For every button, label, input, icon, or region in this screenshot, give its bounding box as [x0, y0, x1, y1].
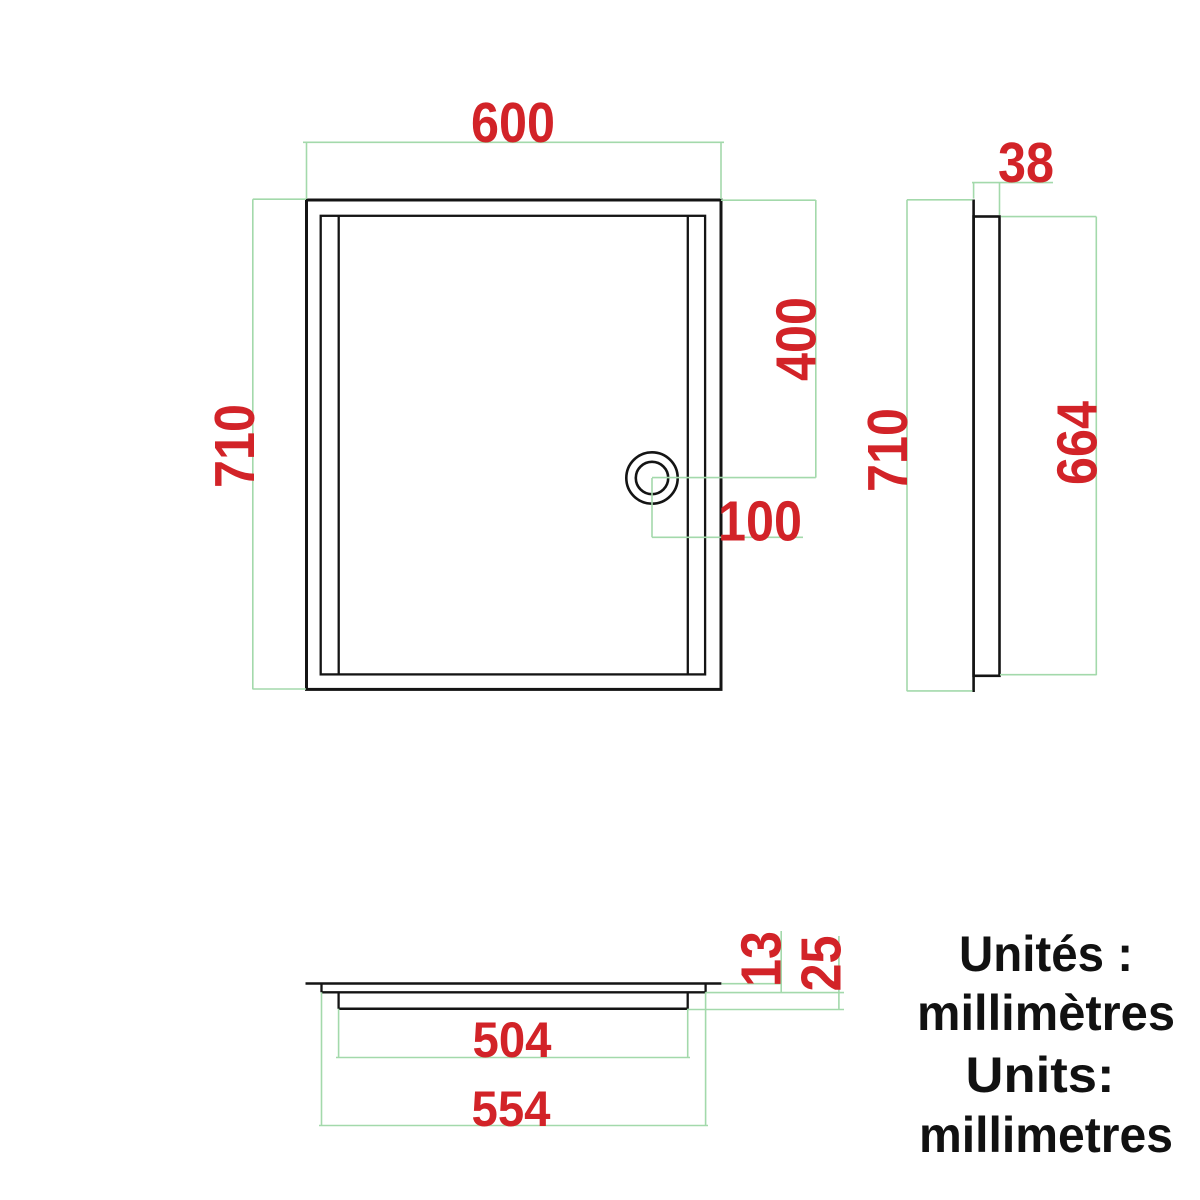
svg-text:Unités :: Unités :	[959, 926, 1133, 982]
svg-text:504: 504	[473, 1012, 552, 1068]
svg-text:400: 400	[765, 297, 829, 381]
svg-text:25: 25	[790, 936, 854, 992]
svg-text:millimetres: millimetres	[919, 1107, 1173, 1163]
svg-text:Units:: Units:	[966, 1047, 1115, 1103]
svg-text:554: 554	[472, 1081, 551, 1137]
svg-text:38: 38	[998, 131, 1054, 195]
svg-text:600: 600	[471, 91, 555, 155]
svg-text:710: 710	[856, 408, 920, 492]
svg-text:13: 13	[730, 931, 794, 987]
svg-text:664: 664	[1045, 401, 1109, 485]
svg-text:710: 710	[203, 404, 267, 488]
svg-text:millimètres: millimètres	[917, 985, 1175, 1041]
svg-text:100: 100	[718, 490, 802, 554]
